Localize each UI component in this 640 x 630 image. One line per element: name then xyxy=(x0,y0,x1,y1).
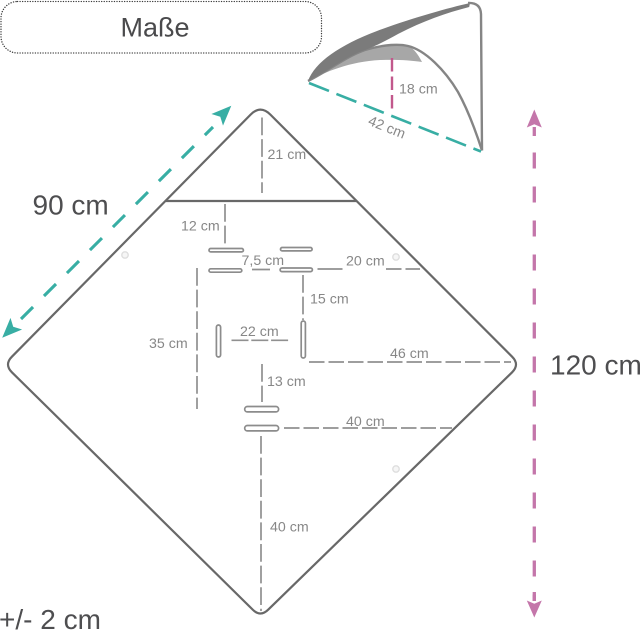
svg-text:20 cm: 20 cm xyxy=(346,254,385,270)
svg-text:35 cm: 35 cm xyxy=(149,336,188,352)
svg-text:40 cm: 40 cm xyxy=(346,414,385,430)
svg-text:12 cm: 12 cm xyxy=(181,219,220,235)
svg-text:13 cm: 13 cm xyxy=(267,374,306,390)
svg-text:Maße: Maße xyxy=(120,13,189,43)
svg-text:7,5 cm: 7,5 cm xyxy=(242,253,285,269)
svg-text:+/- 2 cm: +/- 2 cm xyxy=(0,604,101,630)
svg-text:90 cm: 90 cm xyxy=(33,190,109,221)
svg-text:40 cm: 40 cm xyxy=(270,520,309,536)
svg-text:21 cm: 21 cm xyxy=(268,147,307,163)
svg-text:22 cm: 22 cm xyxy=(240,324,279,340)
svg-text:18 cm: 18 cm xyxy=(399,82,438,98)
svg-text:15 cm: 15 cm xyxy=(310,292,349,308)
svg-text:120 cm: 120 cm xyxy=(550,350,640,381)
svg-text:46 cm: 46 cm xyxy=(390,346,429,362)
